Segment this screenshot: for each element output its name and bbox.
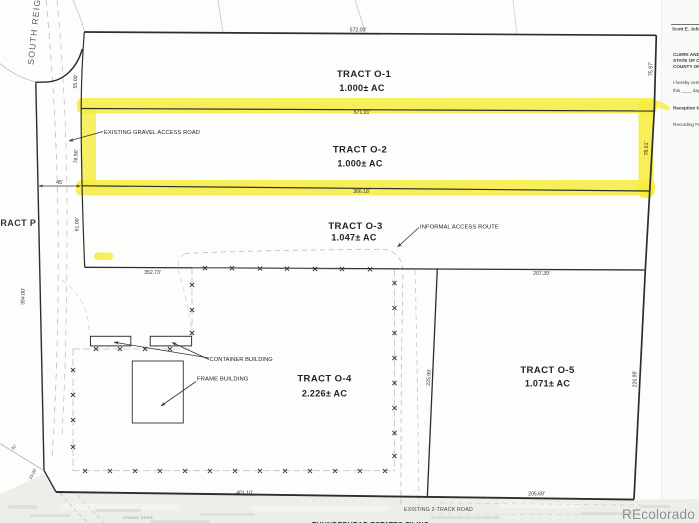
svg-text:1.000± AC: 1.000± AC [337, 159, 383, 169]
svg-text:CONTAINER BUILDING: CONTAINER BUILDING [210, 357, 273, 363]
svg-text:TRACT O-2: TRACT O-2 [333, 145, 387, 156]
svg-text:COUNTY OF ELBERT: COUNTY OF ELBERT [673, 64, 699, 69]
svg-text:EXISTING GRAVEL ACCESS ROAD: EXISTING GRAVEL ACCESS ROAD [104, 130, 200, 136]
svg-text:61.00': 61.00' [74, 217, 80, 231]
svg-text:REcolorado: REcolorado [622, 507, 695, 522]
svg-text:78.61': 78.61' [644, 142, 650, 156]
svg-text:GRAVEL DRIVE: GRAVEL DRIVE [123, 515, 154, 520]
svg-text:55.00': 55.00' [73, 74, 79, 88]
svg-text:205.69': 205.69' [528, 492, 545, 498]
svg-text:78.50': 78.50' [73, 149, 79, 163]
svg-text:45': 45' [56, 180, 63, 186]
svg-text:TRACT O-3: TRACT O-3 [328, 221, 382, 232]
svg-text:CLERK AND RECORDER: CLERK AND RECORDER [673, 52, 699, 57]
svg-text:572.00': 572.00' [350, 28, 367, 34]
svg-text:226.99': 226.99' [632, 371, 638, 388]
svg-text:366.18': 366.18' [353, 189, 370, 195]
svg-text:207.39': 207.39' [533, 271, 550, 277]
svg-text:FRAME BUILDING: FRAME BUILDING [197, 377, 249, 383]
svg-text:Scott E. Johnson, Recorder: Scott E. Johnson, Recorder [672, 27, 699, 32]
svg-text:this ____ day of ____: this ____ day of ____ [673, 88, 699, 93]
svg-text:75.97': 75.97' [649, 62, 655, 76]
svg-text:Reception No. ______: Reception No. ______ [673, 106, 699, 111]
svg-text:I hereby certify that this: I hereby certify that this [673, 80, 699, 85]
svg-text:1.047± AC: 1.047± AC [331, 233, 377, 243]
svg-text:1.071± AC: 1.071± AC [525, 379, 571, 389]
svg-text:1.000± AC: 1.000± AC [339, 83, 385, 93]
svg-text:TRACT P: TRACT P [0, 218, 36, 228]
svg-text:TRACT O-4: TRACT O-4 [297, 374, 352, 385]
svg-text:225.99': 225.99' [426, 369, 433, 386]
svg-text:401.10': 401.10' [236, 491, 253, 497]
svg-text:EXISTING 2-TRACK ROAD: EXISTING 2-TRACK ROAD [404, 507, 473, 513]
svg-text:INFORMAL ACCESS ROUTE: INFORMAL ACCESS ROUTE [420, 225, 499, 231]
svg-text:Recording Fee ____: Recording Fee ____ [673, 122, 699, 127]
svg-text:TRACT O-5: TRACT O-5 [520, 365, 575, 376]
svg-text:STATE OF COLORADO: STATE OF COLORADO [673, 58, 699, 63]
svg-text:352.73': 352.73' [144, 270, 161, 276]
svg-text:2.226± AC: 2.226± AC [302, 389, 348, 399]
svg-text:571.91': 571.91' [354, 110, 371, 116]
svg-text:394.00': 394.00' [20, 288, 26, 305]
svg-text:TRACT O-1: TRACT O-1 [337, 69, 392, 80]
